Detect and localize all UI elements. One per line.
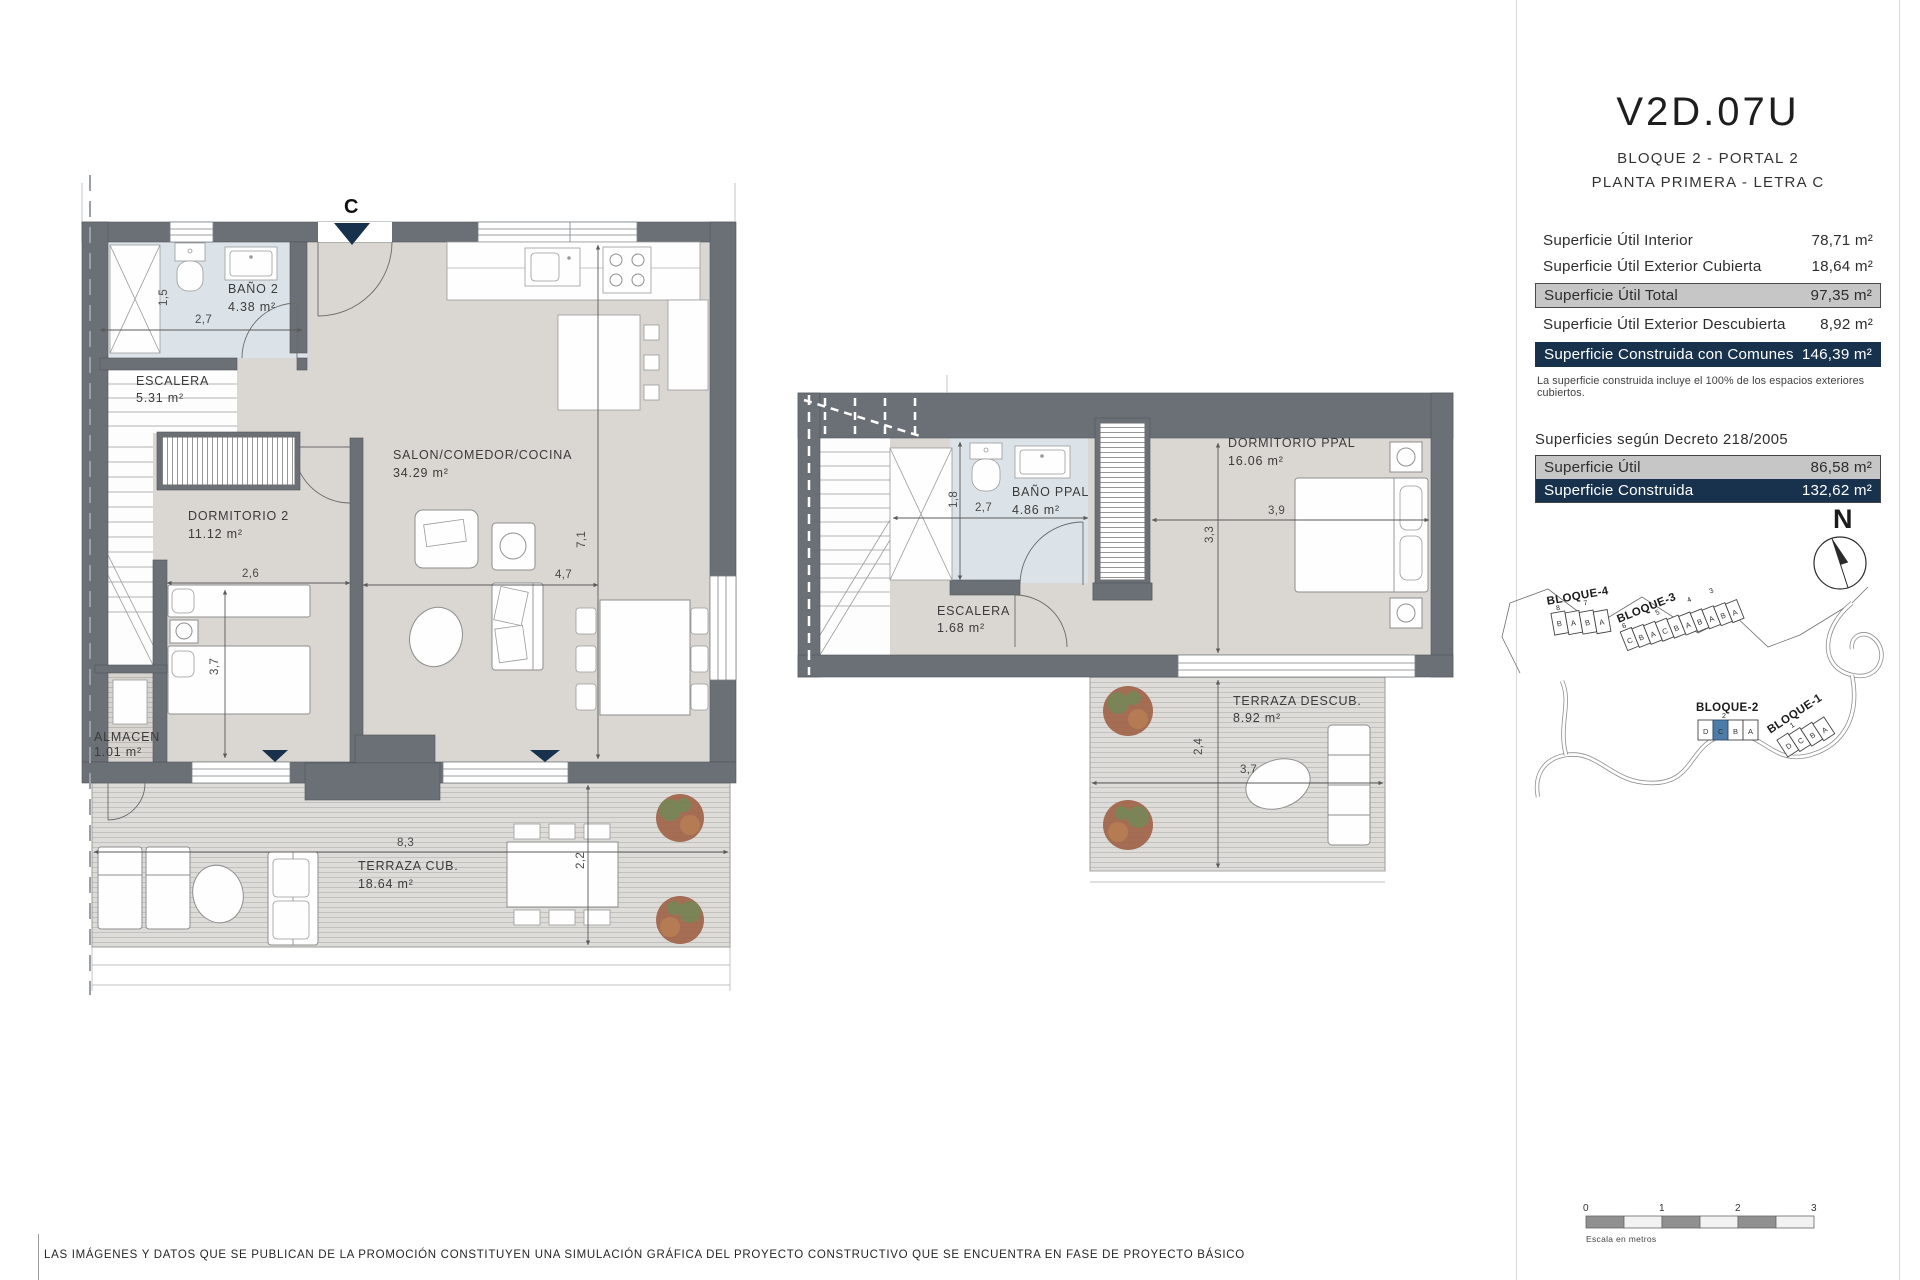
- dim-bano-w: 2,7: [195, 314, 212, 326]
- row-value: 78,71 m²: [1811, 232, 1873, 249]
- room-area-escalera: 1.68 m²: [937, 621, 985, 635]
- table-row-util: Superficie Útil 86,58 m²: [1536, 456, 1880, 479]
- row-value: 132,62 m²: [1802, 482, 1872, 499]
- room-label-escalera: ESCALERA: [136, 374, 209, 388]
- room-area-dorm-ppal: 16.06 m²: [1228, 454, 1284, 468]
- unit-letter-highlighted: C: [1718, 727, 1724, 736]
- room-label-dorm-ppal: DORMITORIO PPAL: [1228, 436, 1356, 450]
- floor-plan-upper: BAÑO PPAL 4.86 m² 1,8 2,7 ESCALERA 1.68 …: [790, 370, 1470, 970]
- row-label: Superficie Útil Total: [1544, 287, 1678, 304]
- unit-subtitle-2: PLANTA PRIMERA - LETRA C: [1517, 174, 1899, 191]
- scale-caption: Escala en metros: [1586, 1234, 1656, 1244]
- row-value: 18,64 m²: [1811, 258, 1873, 275]
- areas-table: Superficie Útil Interior 78,71 m² Superf…: [1535, 229, 1881, 399]
- dim-terraza-h: 2,4: [1193, 738, 1205, 755]
- room-label-bano-ppal: BAÑO PPAL: [1012, 485, 1089, 499]
- table-row-constructed: Superficie Construida con Comunes 146,39…: [1535, 342, 1881, 367]
- decreto-table: Superficie Útil 86,58 m² Superficie Cons…: [1535, 455, 1881, 503]
- title-block: V2D.07U BLOQUE 2 - PORTAL 2 PLANTA PRIME…: [1517, 90, 1899, 191]
- portal-number: 8: [1556, 605, 1561, 613]
- unit-letter: B: [1733, 727, 1738, 736]
- row-label: Superficie Construida: [1544, 482, 1693, 499]
- room-area-bano2: 4.38 m²: [228, 300, 276, 314]
- site-block-3: BLOQUE-3 6 5 4 3 C B A C B A B A B A: [1613, 575, 1744, 663]
- site-plan: BLOQUE-4 8 7 B A B A BLOQUE-3 6 5 4 3 C …: [1500, 575, 1920, 845]
- sofa-icon: [492, 583, 543, 670]
- table-row: Superficie Útil Exterior Descubierta 8,9…: [1535, 313, 1881, 336]
- dim-bano-h: 1,8: [948, 491, 960, 508]
- room-area-dorm2: 11.12 m²: [188, 527, 243, 541]
- site-block-4: BLOQUE-4 8 7 B A B A: [1546, 585, 1616, 641]
- room-label-almacen: ALMACEN: [94, 730, 160, 744]
- dim-bano-h: 1,5: [158, 289, 170, 306]
- bed-single-2: [168, 646, 310, 714]
- nightstand-icon: [1390, 598, 1422, 628]
- areas-note: La superficie construida incluye el 100%…: [1537, 375, 1879, 399]
- toilet-icon: [175, 243, 205, 291]
- nightstand-icon: [170, 620, 198, 643]
- room-label-escalera: ESCALERA: [937, 604, 1010, 618]
- planter-tree-icon: [656, 794, 704, 842]
- dim-terraza-w: 8,3: [397, 837, 414, 849]
- stair-floor: [820, 438, 890, 655]
- row-label: Superficie Útil: [1544, 459, 1641, 476]
- room-area-terraza-descub: 8.92 m²: [1233, 711, 1281, 725]
- terrace-lounger-icon: [1328, 725, 1370, 845]
- scale-tick: 3: [1811, 1203, 1817, 1214]
- row-label: Superficie Construida con Comunes: [1544, 346, 1794, 363]
- nightstand-icon: [1390, 442, 1422, 472]
- room-label-bano2: BAÑO 2: [228, 282, 279, 296]
- kitchen-island: [558, 315, 659, 410]
- scale-tick: 2: [1735, 1203, 1741, 1214]
- room-label-terraza: TERRAZA CUB.: [358, 859, 459, 873]
- unit-letter: A: [1748, 727, 1753, 736]
- room-label-terraza-descub: TERRAZA DESCUB.: [1233, 694, 1362, 708]
- terrace-window: [1178, 655, 1415, 677]
- wardrobe: [1093, 418, 1152, 600]
- north-label: N: [1833, 504, 1853, 534]
- entrance-letter: C: [344, 196, 358, 218]
- table-row-total: Superficie Útil Total 97,35 m²: [1535, 283, 1881, 308]
- portal-number: 5: [1655, 609, 1661, 617]
- stair-floor-flight: [108, 433, 153, 665]
- dim-terraza-h: 2,2: [575, 852, 587, 869]
- dining-set: [576, 600, 708, 715]
- dim-dorm-h: 3,7: [209, 658, 221, 675]
- unit-letter: D: [1703, 727, 1709, 736]
- shower-icon: [890, 448, 952, 580]
- scale-bar: 0 1 2 3 Escala en metros: [1578, 1198, 1828, 1258]
- planter-tree-icon: [1103, 686, 1153, 736]
- room-area-almacen: 1.01 m²: [94, 745, 142, 759]
- room-label-dorm2: DORMITORIO 2: [188, 509, 289, 523]
- block-name: BLOQUE-2: [1696, 702, 1759, 714]
- dim-dorm-h: 3,3: [1204, 526, 1216, 543]
- portal-number: 7: [1583, 600, 1588, 608]
- armchair-icon: [492, 523, 535, 570]
- unit-subtitle-1: BLOQUE 2 - PORTAL 2: [1517, 150, 1899, 167]
- planter-tree-icon: [656, 896, 704, 944]
- almacen-box: [113, 680, 147, 724]
- dim-salon-h: 7,1: [576, 531, 588, 548]
- dim-dorm-w: 2,6: [242, 568, 259, 580]
- terrace-dining-set: [507, 824, 618, 925]
- unit-code: V2D.07U: [1517, 90, 1899, 135]
- dim-salon-w: 4,7: [555, 569, 572, 581]
- row-label: Superficie Útil Exterior Cubierta: [1543, 258, 1761, 275]
- site-block-2: BLOQUE-2 2 D C B A: [1696, 702, 1759, 740]
- portal-number: 4: [1686, 596, 1692, 604]
- portal-number: 2: [1722, 713, 1726, 720]
- room-area-terraza: 18.64 m²: [358, 877, 414, 891]
- row-value: 86,58 m²: [1810, 459, 1872, 476]
- toilet-icon: [970, 443, 1002, 491]
- kitchen-counter: [447, 242, 700, 300]
- decreto-section: Superficies según Decreto 218/2005 Super…: [1535, 432, 1881, 503]
- dim-dorm-w: 3,9: [1268, 505, 1285, 517]
- row-label: Superficie Útil Interior: [1543, 232, 1693, 249]
- row-value: 97,35 m²: [1810, 287, 1872, 304]
- block-name: BLOQUE-4: [1546, 585, 1610, 608]
- dim-bano-w: 2,7: [975, 502, 992, 514]
- portal-number: 1: [1789, 722, 1796, 730]
- bed-double: [1295, 478, 1428, 592]
- sink-icon: [1015, 446, 1070, 478]
- planter-tree-icon: [1103, 800, 1153, 850]
- dorm-wardrobe: [162, 437, 295, 485]
- row-label: Superficie Útil Exterior Descubierta: [1543, 316, 1786, 333]
- coffee-table-icon: [415, 510, 478, 568]
- room-area-bano-ppal: 4.86 m²: [1012, 503, 1060, 517]
- terrace-sofa-icon: [268, 852, 318, 945]
- row-value: 146,39 m²: [1802, 346, 1872, 363]
- table-row: Superficie Útil Interior 78,71 m²: [1535, 229, 1881, 252]
- footer-disclaimer: LAS IMÁGENES Y DATOS QUE SE PUBLICAN DE …: [44, 1249, 1245, 1261]
- floor-plan-lower: C: [70, 175, 760, 1055]
- room-label-salon: SALON/COMEDOR/COCINA: [393, 448, 572, 462]
- sheet-corner-mark: [38, 1234, 39, 1280]
- table-row: Superficie Útil Exterior Cubierta 18,64 …: [1535, 255, 1881, 278]
- dim-terraza-w: 3,7: [1240, 764, 1257, 776]
- room-area-salon: 34.29 m²: [393, 466, 449, 480]
- scale-tick: 0: [1583, 1203, 1589, 1214]
- decreto-heading: Superficies según Decreto 218/2005: [1535, 432, 1881, 448]
- room-area-escalera: 5.31 m²: [136, 391, 184, 405]
- scale-tick: 1: [1659, 1203, 1665, 1214]
- row-value: 8,92 m²: [1820, 316, 1873, 333]
- sink-icon: [225, 247, 277, 280]
- kitchen-tall-unit: [668, 300, 708, 390]
- bed-single-1: [168, 585, 310, 617]
- portal-number: 3: [1708, 587, 1714, 595]
